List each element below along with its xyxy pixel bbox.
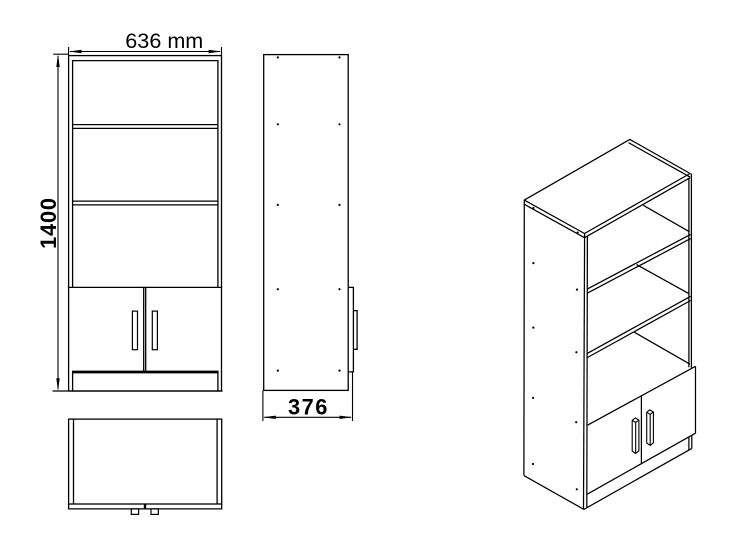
svg-text:376: 376	[288, 394, 329, 419]
svg-text:1400: 1400	[36, 197, 61, 249]
svg-text:636 mm: 636 mm	[125, 28, 203, 53]
